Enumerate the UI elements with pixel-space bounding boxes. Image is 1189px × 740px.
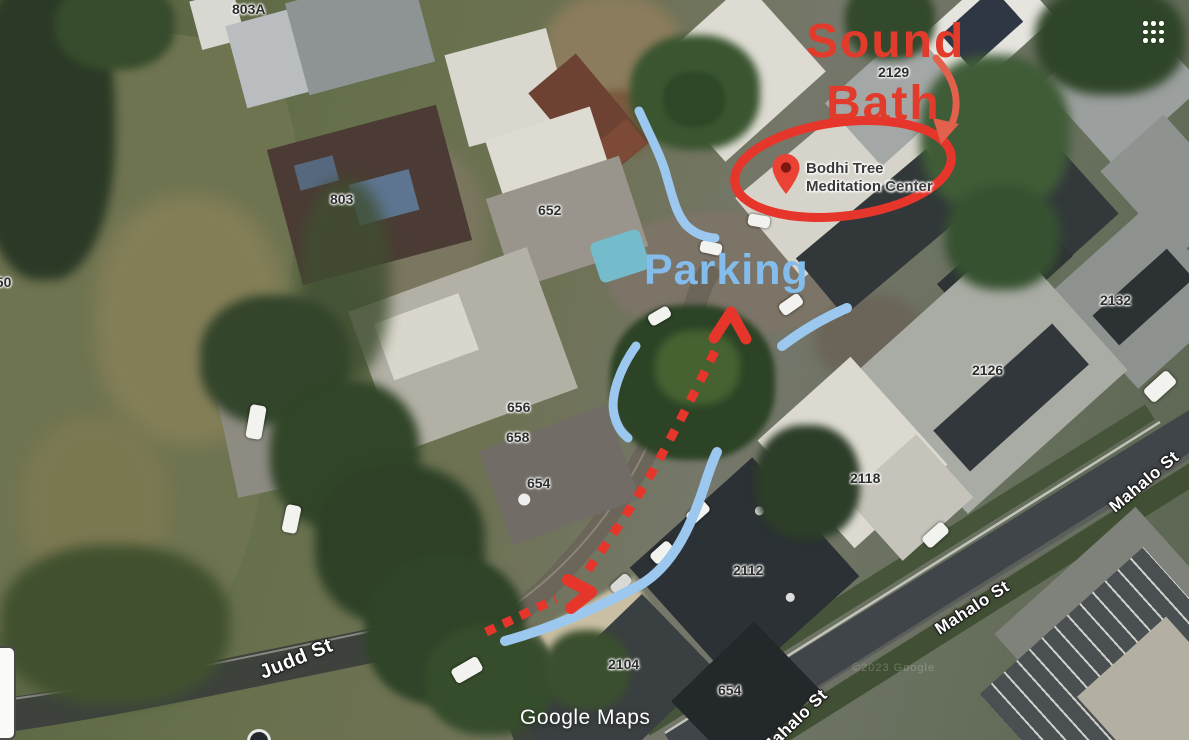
- apps-dot: [1159, 38, 1164, 43]
- blue-line: [639, 111, 715, 238]
- partial-ui-card[interactable]: [0, 646, 16, 740]
- apps-dot: [1143, 38, 1148, 43]
- place-label-line1: Bodhi Tree: [806, 160, 933, 178]
- map-pin-icon[interactable]: [771, 153, 801, 195]
- sound-bath-label-line2: Bath: [826, 76, 941, 131]
- apps-dot: [1151, 21, 1156, 26]
- parking-label: Parking: [644, 246, 809, 295]
- place-label[interactable]: Bodhi Tree Meditation Center: [806, 160, 933, 196]
- apps-dot: [1159, 21, 1164, 26]
- annotations-layer: [0, 0, 1189, 740]
- apps-dot: [1143, 21, 1148, 26]
- sound-bath-label-line1: Sound: [806, 14, 965, 69]
- apps-dot: [1151, 38, 1156, 43]
- place-label-line2: Meditation Center: [806, 178, 933, 196]
- blue-line: [782, 308, 847, 346]
- red-arrowhead: [568, 580, 591, 608]
- apps-dot: [1143, 30, 1148, 35]
- google-maps-watermark[interactable]: Google Maps: [520, 706, 650, 730]
- red-dotted-trail: [588, 345, 718, 570]
- blue-line: [613, 346, 636, 438]
- apps-dot: [1151, 30, 1156, 35]
- apps-dot: [1159, 30, 1164, 35]
- blue-line: [505, 452, 717, 641]
- red-arrowhead: [714, 312, 746, 339]
- map-screenshot: 803A 803 650 652 656 658 654 2129 2132 2…: [0, 0, 1189, 740]
- google-apps-grid-icon[interactable]: [1143, 21, 1164, 44]
